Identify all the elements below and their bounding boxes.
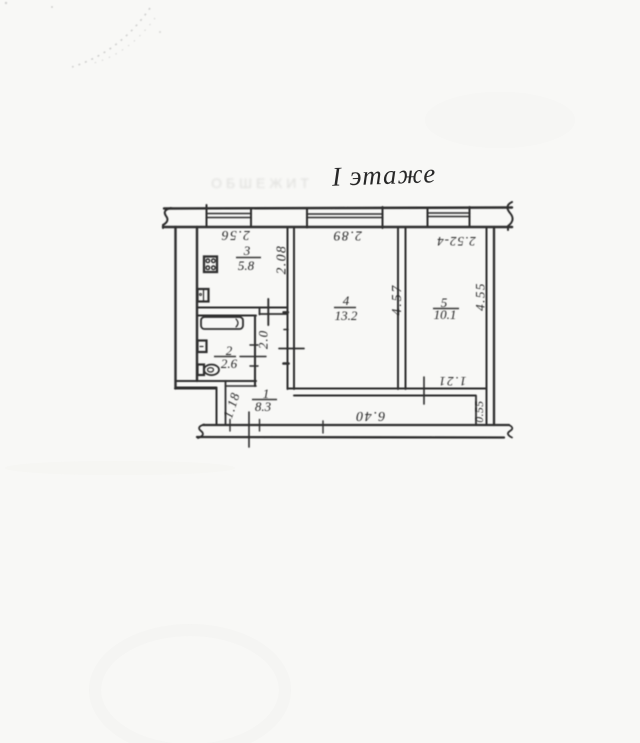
svg-text:4: 4	[343, 293, 350, 308]
svg-text:4.55: 4.55	[473, 282, 488, 311]
svg-text:2.89: 2.89	[332, 229, 362, 244]
svg-text:3: 3	[243, 243, 251, 258]
svg-text:2.52-4: 2.52-4	[436, 234, 476, 249]
svg-text:1.21: 1.21	[438, 374, 467, 389]
svg-text:2.56: 2.56	[220, 228, 250, 243]
svg-text:ОБШЕЖИТ: ОБШЕЖИТ	[211, 175, 313, 191]
svg-text:2.0: 2.0	[256, 330, 271, 349]
svg-text:0.55: 0.55	[474, 400, 486, 422]
svg-text:10.1: 10.1	[434, 307, 457, 322]
svg-text:2.6: 2.6	[221, 356, 238, 371]
svg-text:6.40: 6.40	[355, 408, 386, 423]
svg-text:5.8: 5.8	[238, 258, 255, 273]
svg-text:8.3: 8.3	[255, 399, 272, 414]
svg-text:I этаже: I этаже	[330, 158, 436, 192]
svg-text:4.57: 4.57	[389, 284, 404, 316]
svg-text:13.2: 13.2	[335, 308, 358, 323]
svg-text:1.18: 1.18	[220, 390, 243, 420]
svg-text:2.08: 2.08	[274, 245, 289, 275]
